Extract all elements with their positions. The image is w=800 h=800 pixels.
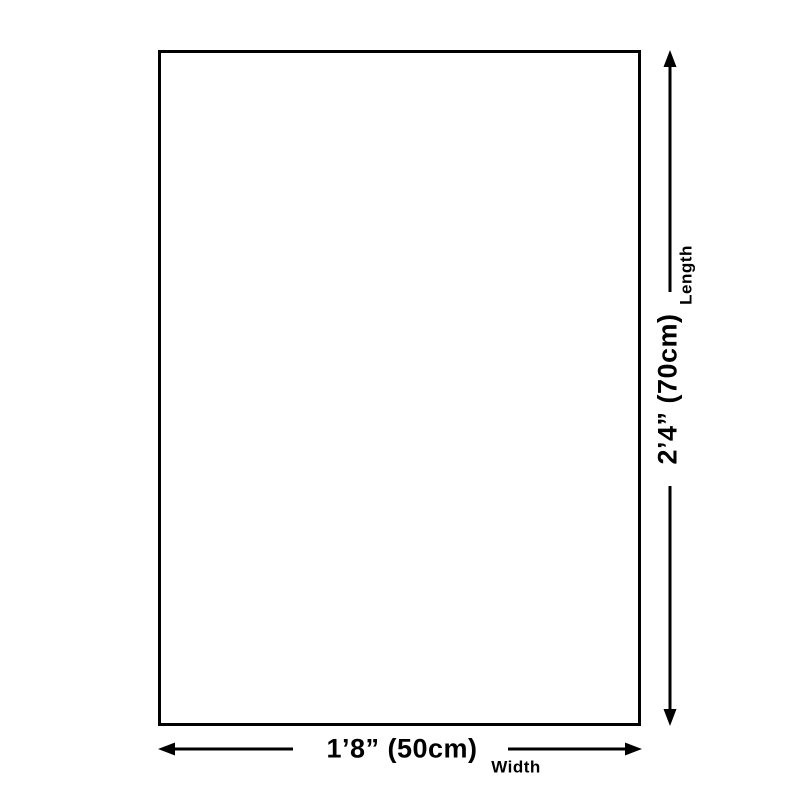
- width-axis-label: Width: [491, 759, 541, 776]
- arrow-up-icon: [664, 50, 677, 67]
- length-axis-label: Length: [678, 245, 695, 305]
- arrow-right-icon: [625, 743, 642, 756]
- dimension-diagram: 2’4” (70cm) Length 1’8” (50cm) Width: [0, 0, 800, 800]
- product-outline-rectangle: [158, 50, 641, 726]
- arrow-down-icon: [664, 709, 677, 726]
- length-value-label: 2’4” (70cm): [655, 313, 682, 464]
- arrow-left-icon: [158, 743, 175, 756]
- width-value-label: 1’8” (50cm): [326, 736, 477, 763]
